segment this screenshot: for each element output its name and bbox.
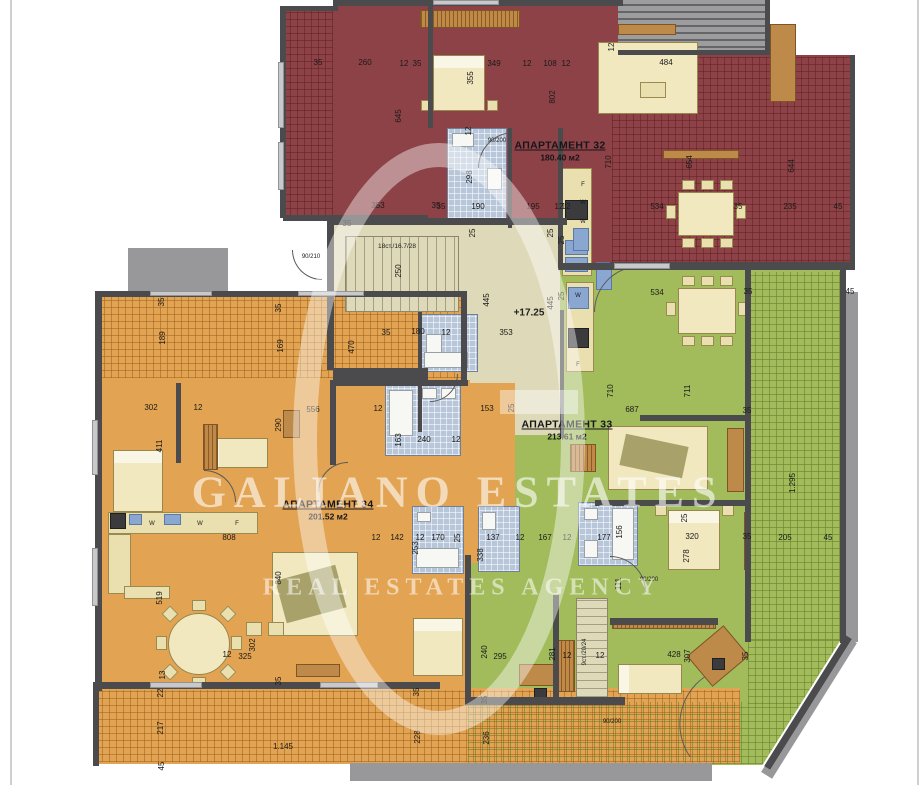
dim-label: 90/200 <box>488 138 506 144</box>
dim-label: 35 <box>413 688 421 697</box>
dining-table <box>678 288 736 334</box>
dim-label: 556 <box>306 406 319 414</box>
dim-label: 12 <box>465 127 473 136</box>
window <box>278 62 284 128</box>
window <box>92 420 98 475</box>
dim-label: 302 <box>249 638 257 651</box>
toilet <box>426 334 442 354</box>
shadow-strip <box>846 292 858 642</box>
dim-label: 302 <box>144 404 157 412</box>
sink <box>482 512 496 530</box>
wall <box>465 697 625 705</box>
wall <box>563 263 855 270</box>
dim-label: 45 <box>824 534 833 542</box>
dim-label: 13 <box>159 671 167 680</box>
dim-label: 35 <box>734 203 743 211</box>
dim-label: 205 <box>778 534 791 542</box>
chair <box>192 600 206 611</box>
chair <box>701 276 714 286</box>
chair <box>720 238 733 248</box>
apartment-33-area: 213.61 м2 <box>521 432 612 442</box>
dim-label: 35 <box>275 304 283 313</box>
dim-label: 338 <box>477 548 485 561</box>
wardrobe <box>203 424 218 470</box>
level-mark: +17.25 <box>514 308 545 319</box>
dim-label: 12 <box>223 651 232 659</box>
dim-label: 290 <box>275 418 283 431</box>
dim-label: 25 <box>558 292 566 301</box>
window <box>278 142 284 190</box>
dim-label: 25 <box>469 229 477 238</box>
dim-label: 236 <box>483 731 491 744</box>
wall <box>283 6 338 11</box>
dim-label: 654 <box>686 155 694 168</box>
dim-label: 90/210 <box>302 254 320 260</box>
wall <box>327 218 567 225</box>
dim-label: 22 <box>157 689 165 698</box>
chair <box>682 276 695 286</box>
dim-label: 153 <box>480 405 493 413</box>
terrace-grid <box>748 272 843 640</box>
dim-label: W <box>197 521 203 527</box>
dim-label: 12 <box>563 652 572 660</box>
window <box>150 291 212 296</box>
dim-label: 1.145 <box>273 743 293 751</box>
dim-label: 12 <box>562 60 571 68</box>
wall <box>93 682 99 766</box>
dim-label: 35 <box>481 696 489 705</box>
page-border-right <box>917 0 919 785</box>
sideboard <box>618 24 676 35</box>
tv-console <box>296 664 340 677</box>
dim-label: 1.295 <box>789 473 797 493</box>
dim-label: 645 <box>395 109 403 122</box>
dim-label: 228 <box>414 730 422 743</box>
dim-label: F <box>581 182 585 188</box>
armchair <box>268 622 284 636</box>
dim-label: 349 <box>487 60 500 68</box>
apartment-32-name: АПАРТАМЕНТ 32 <box>514 140 605 152</box>
dim-label: 35 <box>382 329 391 337</box>
dim-label: 35 <box>743 533 752 541</box>
dim-label: 298 <box>466 170 474 183</box>
dim-label: 253 <box>412 541 420 554</box>
dim-label: 445 <box>547 296 555 309</box>
dim-label: 35 <box>742 652 750 661</box>
dim-label: 710 <box>605 155 613 168</box>
dim-label: 295 <box>493 653 506 661</box>
dim-label: 355 <box>467 71 475 84</box>
dim-label: 90/200 <box>640 577 658 583</box>
dim-label: 411 <box>156 440 164 453</box>
dim-label: W <box>149 521 155 527</box>
dim-label: F <box>235 521 239 527</box>
dim-label: 170 <box>431 534 444 542</box>
dim-label: 137 <box>486 534 499 542</box>
dim-label: 35 <box>744 288 753 296</box>
dim-label: W <box>575 293 581 299</box>
window <box>614 263 670 269</box>
bathtub <box>416 548 459 568</box>
chair <box>682 180 695 190</box>
wall <box>330 383 336 465</box>
dim-label: 687 <box>625 406 638 414</box>
chair <box>701 180 714 190</box>
bed <box>618 664 682 694</box>
shadow-strip <box>350 763 712 781</box>
dim-label: 108 <box>543 60 556 68</box>
dim-label: 25 <box>681 514 689 523</box>
wall <box>176 383 181 463</box>
dim-label: 711 <box>684 385 692 398</box>
dim-label: 470 <box>348 340 356 353</box>
armchair <box>246 622 262 636</box>
terrace-grid <box>95 690 740 762</box>
dim-label: 35 <box>314 59 323 67</box>
dim-label: 12 <box>400 60 409 68</box>
chair <box>720 336 733 346</box>
dim-label: W <box>580 219 586 225</box>
staircase <box>576 598 608 698</box>
stove <box>110 513 126 529</box>
dim-label: 12 <box>194 404 203 412</box>
dim-label: 428 <box>667 651 680 659</box>
dim-label: 320 <box>685 533 698 541</box>
wall <box>95 682 440 689</box>
apartment-34-area: 201.52 м2 <box>282 512 373 522</box>
window <box>150 682 202 688</box>
nightstand <box>655 505 667 516</box>
dim-label: 12 <box>372 534 381 542</box>
sink <box>164 514 181 525</box>
dim-label: 353 <box>499 329 512 337</box>
dim-label: 12 <box>442 329 451 337</box>
stove <box>568 328 589 348</box>
dim-label: 90/200 <box>603 719 621 725</box>
shelf <box>663 150 739 159</box>
shelf <box>570 444 596 472</box>
nightstand <box>487 100 498 111</box>
dim-label: 445 <box>483 293 491 306</box>
dim-label: 353 <box>371 202 384 210</box>
chair <box>156 636 167 650</box>
dim-label: 156 <box>616 525 624 538</box>
chair <box>666 302 676 316</box>
dim-label: 260 <box>358 59 371 67</box>
dim-label: 325 <box>238 653 251 661</box>
kitchen-counter <box>108 534 131 594</box>
dim-label: 190 <box>471 203 484 211</box>
dim-label: 534 <box>650 289 663 297</box>
dim-label: 484 <box>659 59 672 67</box>
dim-label: 195 <box>526 203 539 211</box>
terrace-grid <box>283 10 333 216</box>
dim-label: 217 <box>157 721 165 734</box>
wall <box>765 0 770 55</box>
wall <box>465 555 471 700</box>
dim-label: W <box>580 200 586 206</box>
dim-label: 45 <box>846 288 855 296</box>
bed <box>433 55 485 111</box>
dim-label: 9ст./20/24 <box>582 639 588 666</box>
dim-label: 802 <box>549 90 557 103</box>
wardrobe <box>727 428 744 492</box>
dim-label: 35 <box>158 298 166 307</box>
dim-label: 12 <box>555 203 564 211</box>
dining-round <box>168 613 230 675</box>
chair <box>682 336 695 346</box>
chair <box>231 636 242 650</box>
dining-table <box>678 192 734 236</box>
coffee-table <box>640 82 666 98</box>
apartment-32-area: 180.40 м2 <box>514 153 605 163</box>
dim-label: 142 <box>390 534 403 542</box>
dim-label: 45 <box>834 203 843 211</box>
dim-label: 35 <box>413 60 422 68</box>
sink <box>417 512 431 522</box>
dim-label: 25 <box>547 229 555 238</box>
wall <box>610 618 718 625</box>
dim-label: 169 <box>277 339 285 352</box>
apartment-33-label: АПАРТАМЕНТ 33 213.61 м2 <box>521 419 612 442</box>
dim-label: 240 <box>481 645 489 658</box>
dim-label: 519 <box>156 591 164 604</box>
bathtub <box>389 390 413 436</box>
appliance <box>573 228 589 251</box>
wall <box>640 415 745 421</box>
nightstand <box>722 505 734 516</box>
toilet <box>487 168 502 190</box>
dim-label: 12 <box>563 534 572 542</box>
cabinet <box>770 24 796 102</box>
chair <box>720 276 733 286</box>
wall <box>618 50 770 55</box>
wardrobe <box>420 10 520 28</box>
wall <box>428 0 433 128</box>
sink <box>129 514 142 525</box>
apartment-32-label: АПАРТАМЕНТ 32 180.40 м2 <box>514 140 605 163</box>
dim-label: 250 <box>395 264 403 277</box>
dim-label: 710 <box>607 384 615 397</box>
dim-label: 35 <box>275 677 283 686</box>
dim-label: 45 <box>158 762 166 771</box>
dim-label: 808 <box>222 534 235 542</box>
chair <box>701 336 714 346</box>
toilet <box>584 540 598 558</box>
dim-label: 235 <box>783 203 796 211</box>
dim-label: 35 <box>343 220 352 228</box>
dim-label: 281 <box>549 647 557 660</box>
office-chair <box>712 658 725 670</box>
bed <box>413 618 463 676</box>
window <box>433 0 499 5</box>
wall <box>595 500 750 506</box>
wall <box>461 293 467 385</box>
bed <box>113 450 163 512</box>
floor-plan-sheet: 3526012353553491210812645802124846446547… <box>0 0 924 785</box>
sink <box>584 508 598 520</box>
dim-label: 167 <box>538 534 551 542</box>
chair <box>720 180 733 190</box>
dim-label: 12 <box>608 43 616 52</box>
dim-label: 12 <box>516 534 525 542</box>
dim-label: 163 <box>395 433 403 446</box>
dim-label: 644 <box>788 159 796 172</box>
dim-label: 177 <box>597 534 610 542</box>
wall <box>95 291 102 691</box>
dim-label: 35 <box>432 202 441 210</box>
dim-label: 278 <box>683 549 691 562</box>
dim-label: 189 <box>159 331 167 344</box>
window <box>92 548 98 606</box>
wall <box>840 268 846 643</box>
wall <box>508 128 512 228</box>
dim-label: 534 <box>650 203 663 211</box>
apartment-33-name: АПАРТАМЕНТ 33 <box>521 419 612 431</box>
dim-label: 35 <box>743 407 752 415</box>
shadow-block <box>128 248 228 293</box>
dim-label: 840 <box>275 571 283 584</box>
dresser <box>283 410 300 438</box>
chair <box>666 205 676 219</box>
wall <box>850 55 855 270</box>
apartment-34-label: АПАРТАМЕНТ 34 201.52 м2 <box>282 499 373 522</box>
dim-label: F <box>576 362 580 368</box>
dim-label: 307 <box>684 649 692 662</box>
dim-label: 240 <box>417 436 430 444</box>
dim-label: 25 <box>558 236 566 245</box>
wall <box>330 380 468 386</box>
dim-label: 25 <box>454 534 462 543</box>
dim-label: 25 <box>508 404 516 413</box>
dim-label: 111 <box>615 578 623 590</box>
dim-label: 12 <box>452 436 461 444</box>
page-border-left <box>10 0 12 785</box>
dim-label: 180 <box>411 328 424 336</box>
chair <box>682 238 695 248</box>
window <box>320 682 378 688</box>
dim-label: 12 <box>374 405 383 413</box>
chair <box>701 238 714 248</box>
dim-label: 18ст./16.7/28 <box>378 244 416 251</box>
apartment-34-name: АПАРТАМЕНТ 34 <box>282 499 373 511</box>
dim-label: 12 <box>596 652 605 660</box>
wall <box>745 270 751 642</box>
dim-label: 12 <box>523 60 532 68</box>
window <box>298 291 364 296</box>
